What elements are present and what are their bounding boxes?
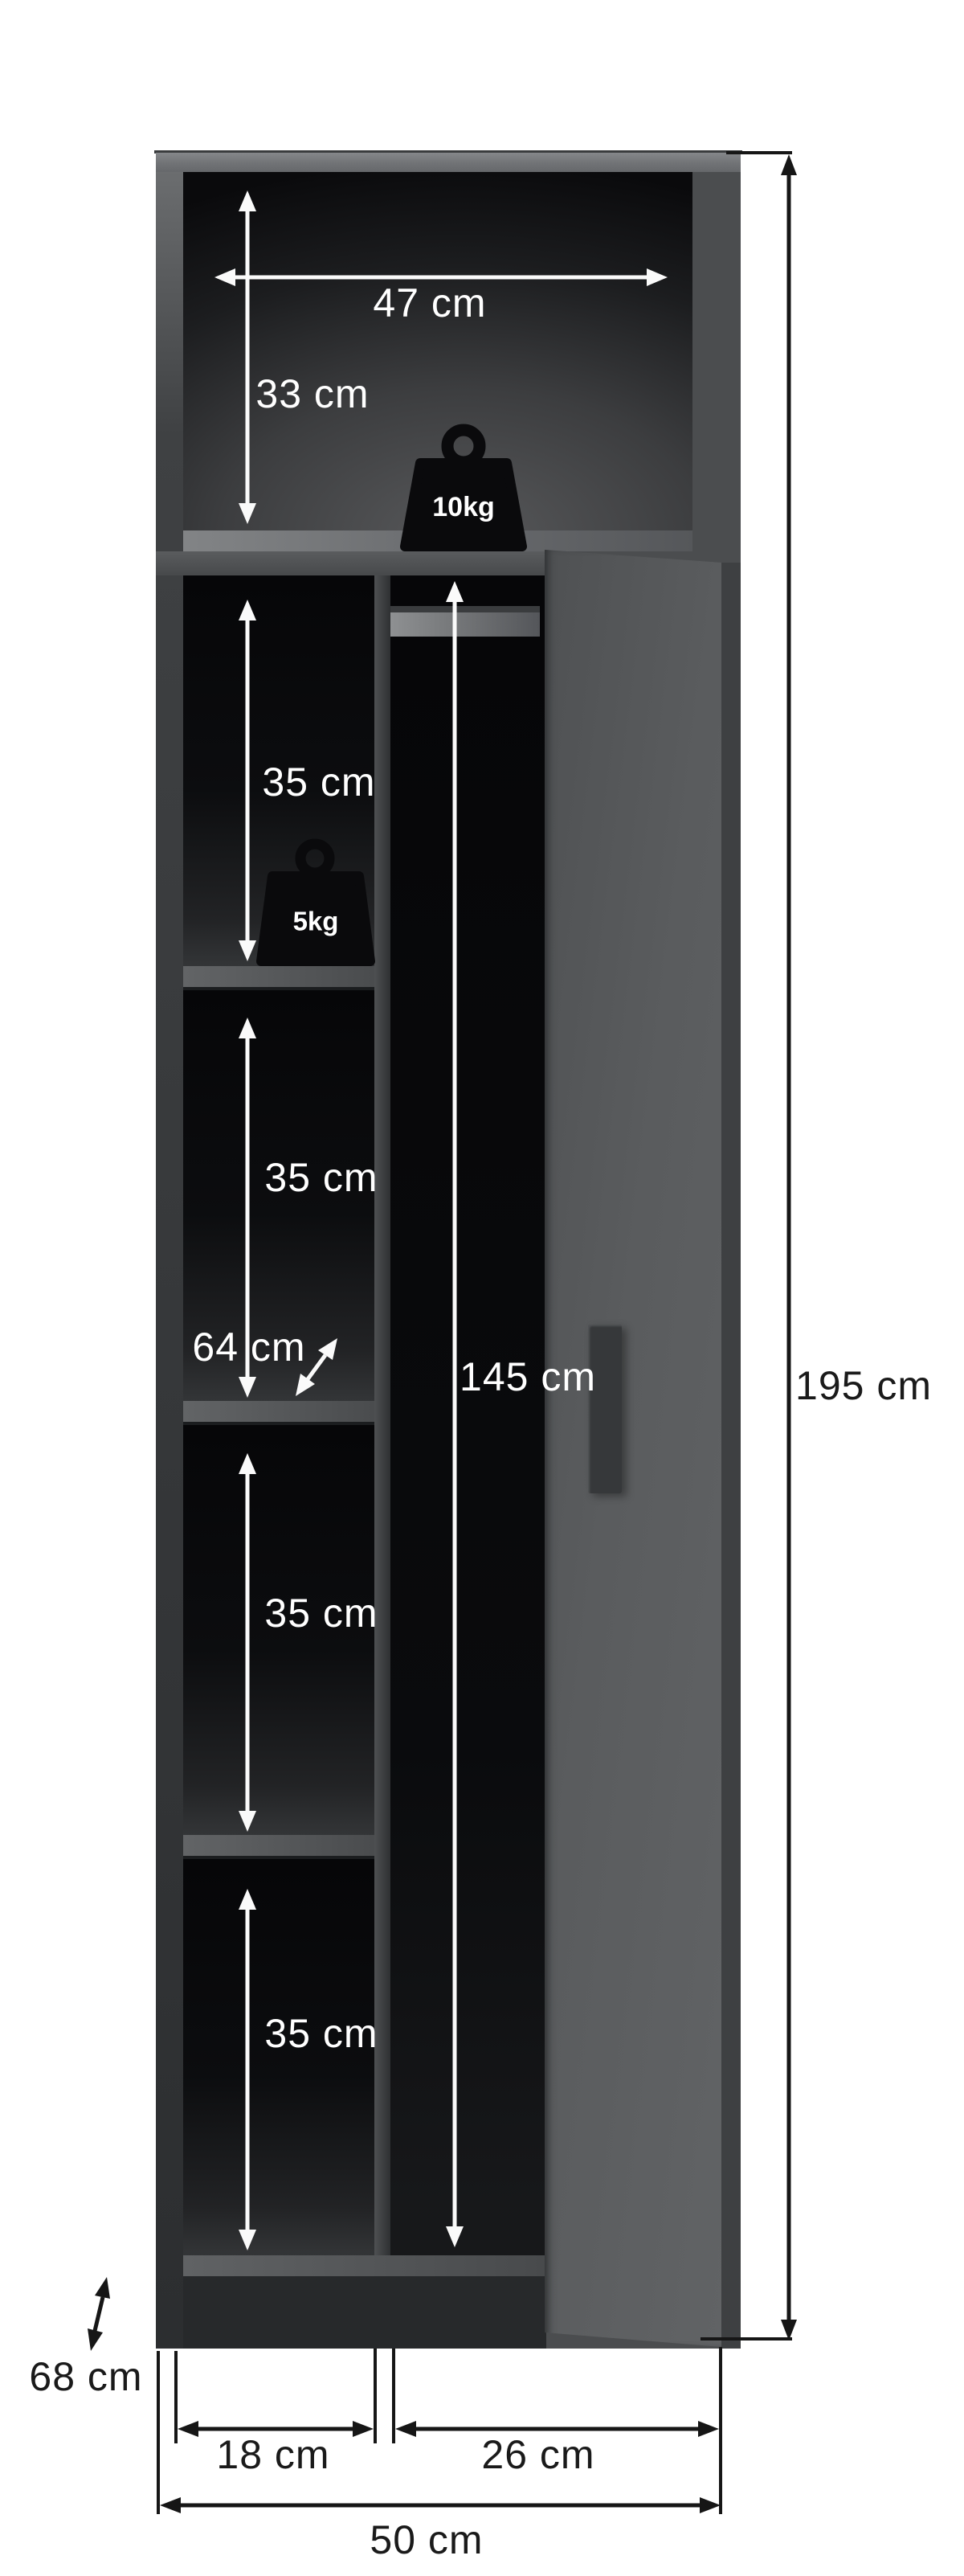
dim-label-section-4: 35 cm [264,2013,378,2054]
dim-label-total-width: 50 cm [370,2520,483,2560]
dim-label-section-2: 35 cm [264,1157,378,1198]
dim-label-section-3: 35 cm [264,1593,378,1633]
weight-5kg-icon [261,844,370,961]
dim-label-hanging-height: 145 cm [460,1357,596,1397]
weight-10kg-label: 10kg [432,493,495,521]
dim-label-total-height: 195 cm [795,1366,932,1406]
dim-label-right-width: 26 cm [481,2435,594,2475]
dim-label-top-height: 33 cm [255,374,369,414]
weight-10kg-icon [405,430,522,547]
dimension-annotations [0,0,964,2576]
dim-label-section-1: 35 cm [262,762,375,802]
wardrobe-dimension-diagram: 47 cm 33 cm 10kg 35 cm 5kg 35 cm 64 cm 1… [0,0,964,2576]
dim-label-total-depth: 68 cm [29,2357,142,2397]
dim-label-left-width: 18 cm [216,2435,329,2475]
weight-5kg-label: 5kg [293,908,339,935]
dim-label-inner-depth: 64 cm [192,1327,305,1367]
dim-label-top-width: 47 cm [373,283,486,323]
